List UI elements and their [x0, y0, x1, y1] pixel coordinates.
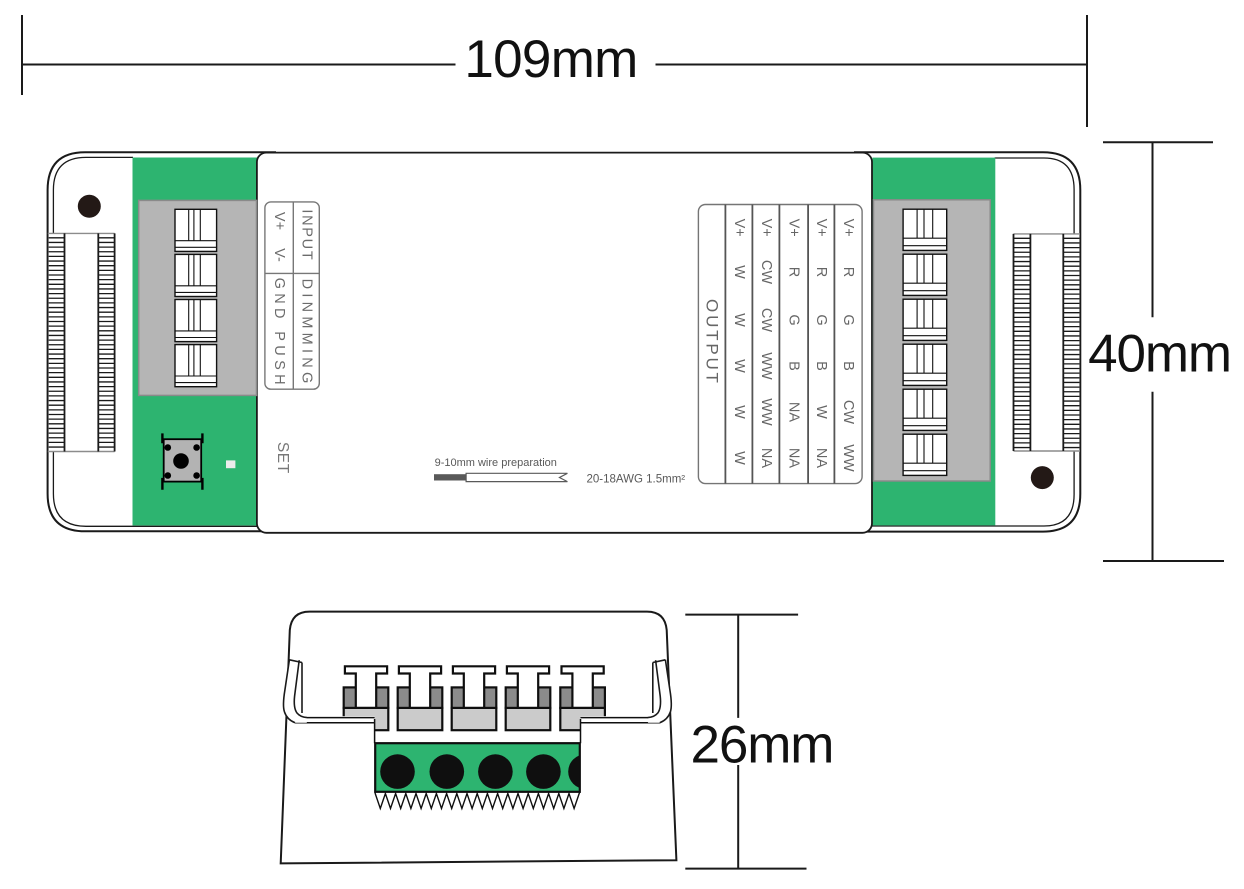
svg-text:26mm: 26mm [690, 716, 833, 775]
svg-text:V+: V+ [271, 212, 287, 230]
svg-text:CW: CW [758, 308, 774, 332]
svg-text:G: G [840, 314, 856, 325]
svg-text:WW: WW [758, 398, 774, 426]
svg-text:G: G [786, 314, 802, 325]
svg-text:W: W [731, 405, 747, 419]
svg-text:CW: CW [840, 400, 856, 424]
svg-text:B: B [840, 361, 856, 371]
svg-text:W: W [731, 265, 747, 279]
svg-text:OUTPUT: OUTPUT [702, 299, 721, 386]
svg-text:GND PUSH: GND PUSH [271, 278, 287, 389]
svg-text:W: W [731, 313, 747, 327]
svg-text:G: G [813, 314, 829, 325]
svg-text:B: B [813, 361, 829, 371]
svg-text:NA: NA [758, 448, 774, 468]
svg-text:9-10mm wire preparation: 9-10mm wire preparation [435, 457, 557, 469]
svg-text:W: W [731, 359, 747, 373]
svg-text:WW: WW [758, 352, 774, 380]
svg-text:NA: NA [786, 402, 802, 422]
svg-text:NA: NA [786, 448, 802, 468]
svg-text:B: B [786, 361, 802, 371]
svg-text:R: R [786, 267, 802, 277]
svg-text:V+: V+ [731, 219, 747, 237]
svg-text:NA: NA [813, 448, 829, 468]
svg-text:WW: WW [840, 444, 856, 472]
svg-text:V+: V+ [758, 219, 774, 237]
svg-text:V+: V+ [813, 219, 829, 237]
svg-text:40mm: 40mm [1088, 325, 1231, 384]
svg-text:V+: V+ [786, 219, 802, 237]
svg-text:20-18AWG 1.5mm²: 20-18AWG 1.5mm² [587, 474, 686, 486]
svg-text:W: W [731, 451, 747, 465]
svg-text:109mm: 109mm [464, 30, 637, 89]
svg-text:R: R [813, 267, 829, 277]
svg-text:SET: SET [274, 442, 291, 474]
svg-text:CW: CW [758, 260, 774, 284]
svg-text:W: W [813, 405, 829, 419]
svg-text:DINMMING: DINMMING [298, 279, 314, 388]
svg-text:V+: V+ [840, 219, 856, 237]
svg-text:V-: V- [271, 248, 287, 262]
svg-text:INPUT: INPUT [298, 209, 314, 261]
svg-text:R: R [840, 267, 856, 277]
